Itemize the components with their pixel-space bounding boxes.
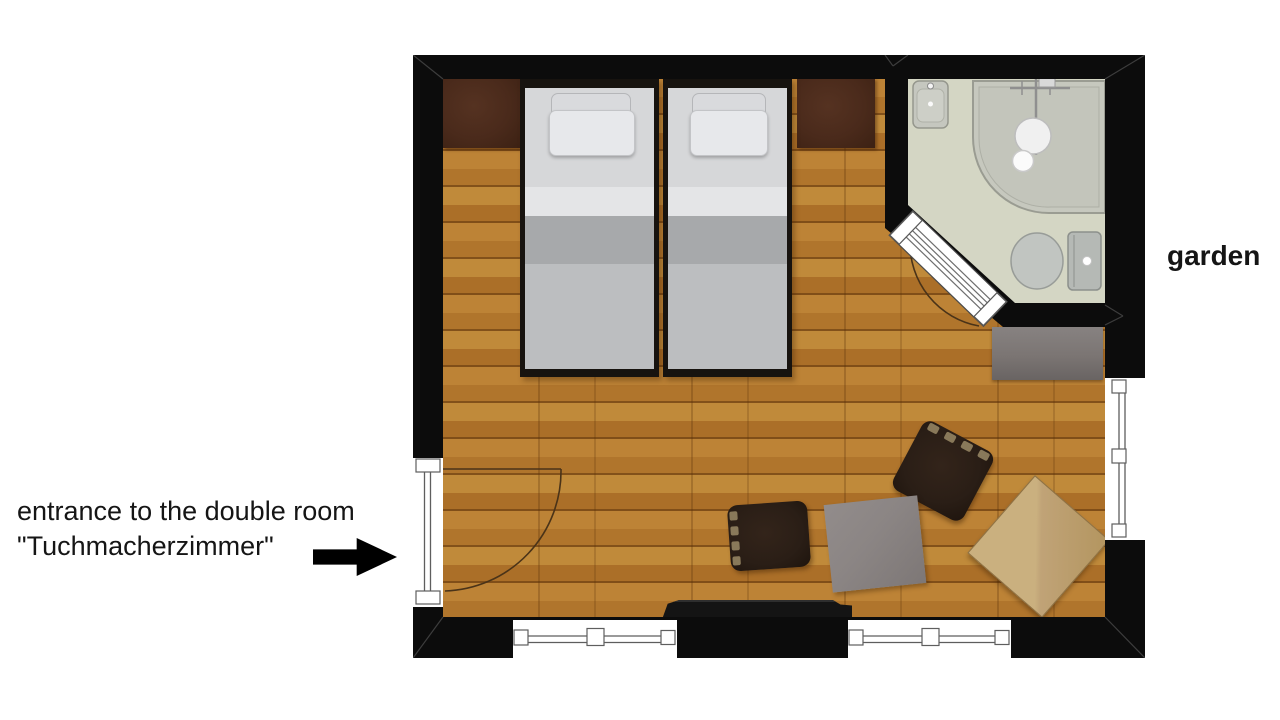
bed-blanket [668,216,787,264]
garden-label: garden [1167,240,1260,272]
bed-right [663,78,792,377]
headboard-panel-left [443,78,520,148]
window-bottom-right [848,620,1011,658]
entrance-label-line1: entrance to the double room [17,494,355,529]
chair-slats [729,511,741,565]
sideboard [660,600,852,625]
chair-lower [727,500,811,571]
bed-blanket [525,216,654,264]
entrance-label-line2: "Tuchmacherzimmer" [17,529,355,564]
entrance-door-opening [413,458,443,607]
entrance-label: entrance to the double room "Tuchmacherz… [17,494,355,564]
bed-fold [525,187,654,216]
pillow [690,110,768,156]
floor-plan [413,55,1145,658]
window-right [1105,378,1145,540]
pillow [549,110,635,156]
dresser [992,327,1103,380]
bed-left [520,78,659,377]
window-bottom-left [513,620,677,658]
headboard-panel-right [797,78,875,148]
bed-fold [668,187,787,216]
table-gray-square [824,495,927,592]
